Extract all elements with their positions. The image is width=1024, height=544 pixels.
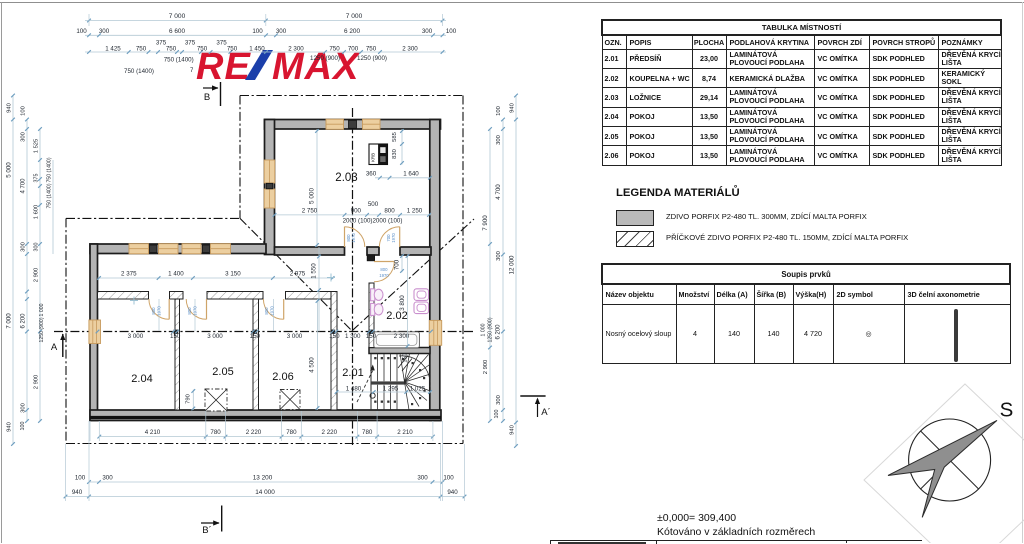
svg-text:940: 940 [7,422,13,432]
svg-text:2000 (100)2000 (100): 2000 (100)2000 (100) [343,218,403,225]
svg-text:1970: 1970 [351,233,356,243]
svg-text:1 525: 1 525 [34,139,40,154]
svg-text:940: 940 [72,489,83,496]
svg-text:940: 940 [510,425,516,435]
svg-text:1 400: 1 400 [168,271,184,278]
svg-text:750: 750 [197,46,208,53]
svg-text:800: 800 [380,267,388,272]
svg-text:150: 150 [403,353,409,362]
svg-text:1 000: 1 000 [39,303,45,316]
svg-text:7 000: 7 000 [169,13,186,20]
svg-text:2 300: 2 300 [288,46,304,53]
svg-text:KRB: KRB [371,153,376,162]
svg-text:3 150: 3 150 [225,271,241,278]
svg-text:5 000: 5 000 [6,162,13,178]
svg-text:100: 100 [75,475,86,482]
svg-text:300: 300 [102,475,113,482]
svg-text:150: 150 [366,333,377,340]
svg-text:7 000: 7 000 [346,13,363,20]
svg-text:2.04: 2.04 [131,373,152,385]
svg-text:100: 100 [446,28,457,35]
svg-text:A: A [51,342,58,353]
svg-text:300: 300 [422,28,433,35]
svg-text:100: 100 [494,410,500,419]
svg-text:1 000: 1 000 [481,323,487,336]
svg-text:830: 830 [392,149,398,159]
svg-text:750 (1400): 750 (1400) [47,157,53,182]
svg-text:2 900: 2 900 [34,268,40,283]
svg-text:780: 780 [362,429,373,436]
svg-text:100: 100 [76,28,87,35]
svg-text:300: 300 [21,132,27,142]
svg-text:13 200: 13 200 [253,475,273,482]
svg-text:2 900: 2 900 [483,360,489,375]
svg-text:1250 (900): 1250 (900) [357,55,387,62]
svg-text:300: 300 [496,251,502,261]
svg-text:6 200: 6 200 [344,28,360,35]
svg-text:1 425: 1 425 [105,46,121,53]
svg-text:4 210: 4 210 [145,429,161,436]
svg-text:940: 940 [447,489,458,496]
svg-text:2 975: 2 975 [290,271,306,278]
svg-text:3 000: 3 000 [207,333,223,340]
svg-text:5 000: 5 000 [309,188,316,204]
svg-text:14 000: 14 000 [255,489,275,496]
svg-text:150: 150 [250,333,261,340]
svg-text:1250 (900): 1250 (900) [39,317,45,342]
svg-text:B: B [204,92,210,103]
svg-text:300: 300 [99,28,110,35]
svg-text:780: 780 [286,429,297,436]
svg-text:700: 700 [394,259,401,270]
svg-text:375: 375 [34,174,40,183]
svg-text:1 550: 1 550 [311,263,318,279]
svg-text:750 (1400): 750 (1400) [164,57,194,64]
svg-text:750: 750 [329,46,340,53]
svg-text:7 900: 7 900 [482,215,489,231]
svg-text:750 (1400): 750 (1400) [47,183,53,208]
svg-text:6 200: 6 200 [21,313,27,329]
svg-text:12 000: 12 000 [509,255,516,274]
svg-text:1970: 1970 [379,273,389,278]
svg-text:2.01: 2.01 [342,367,363,379]
svg-text:300: 300 [21,242,27,252]
svg-text:500: 500 [368,201,379,208]
svg-text:A´: A´ [541,407,551,418]
svg-text:6 600: 6 600 [169,28,185,35]
svg-text:100: 100 [20,422,26,431]
svg-text:2 210: 2 210 [397,429,413,436]
svg-text:4 700: 4 700 [495,184,502,200]
svg-text:780: 780 [210,429,221,436]
svg-text:300: 300 [496,395,502,405]
svg-text:150: 150 [170,333,181,340]
svg-text:300: 300 [417,475,428,482]
svg-text:100: 100 [252,28,263,35]
svg-text:150: 150 [329,333,340,340]
svg-text:300: 300 [276,28,287,35]
svg-text:6 200: 6 200 [496,324,502,340]
svg-text:1 640: 1 640 [403,171,419,178]
svg-text:300: 300 [21,403,27,413]
svg-text:100: 100 [443,475,454,482]
svg-text:1970: 1970 [391,233,396,243]
svg-text:S: S [1000,399,1014,422]
svg-text:1 250: 1 250 [407,208,423,215]
svg-text:2 300: 2 300 [402,46,418,53]
svg-text:2.06: 2.06 [272,371,293,383]
svg-text:7 000: 7 000 [6,313,13,329]
svg-text:3 800: 3 800 [399,295,406,311]
svg-text:800: 800 [151,307,156,315]
svg-text:1 295: 1 295 [383,386,399,393]
svg-text:1 300: 1 300 [345,333,361,340]
svg-text:1250 (900): 1250 (900) [488,317,494,342]
svg-text:585: 585 [392,132,398,142]
svg-text:800: 800 [384,208,395,215]
svg-text:360: 360 [366,171,377,178]
svg-text:2 750: 2 750 [302,208,318,215]
svg-text:1970: 1970 [270,306,275,316]
svg-text:750: 750 [227,46,238,53]
svg-text:900: 900 [351,208,362,215]
svg-text:375: 375 [216,40,227,47]
svg-text:2.05: 2.05 [212,366,233,378]
svg-text:1970: 1970 [193,306,198,316]
svg-text:1970: 1970 [157,306,162,316]
svg-text:3 000: 3 000 [287,333,303,340]
svg-text:4 700: 4 700 [21,178,27,194]
svg-text:750 (1400): 750 (1400) [124,68,154,75]
svg-text:1 480: 1 480 [346,386,362,393]
svg-text:940: 940 [510,103,516,113]
svg-text:1 600: 1 600 [34,205,40,220]
svg-text:750: 750 [136,46,147,53]
svg-text:750: 750 [366,46,377,53]
svg-text:790: 790 [186,394,192,404]
svg-text:2.02: 2.02 [386,310,407,322]
svg-text:2 900: 2 900 [34,375,40,390]
svg-text:300: 300 [34,243,40,252]
svg-text:940: 940 [7,103,13,113]
svg-text:300: 300 [496,135,502,145]
svg-text:700: 700 [348,46,359,53]
svg-text:B´: B´ [202,525,212,536]
svg-text:100: 100 [496,106,502,116]
svg-text:100: 100 [21,106,27,116]
svg-text:4 500: 4 500 [309,357,316,373]
svg-text:2 220: 2 220 [322,429,338,436]
svg-text:2 375: 2 375 [121,271,137,278]
svg-text:750: 750 [166,46,177,53]
svg-text:2 220: 2 220 [246,429,262,436]
svg-text:1250 (900): 1250 (900) [310,55,340,62]
svg-text:3 000: 3 000 [128,333,144,340]
svg-text:1 025: 1 025 [410,386,426,393]
svg-text:2.03: 2.03 [335,172,357,184]
svg-text:800: 800 [187,307,192,315]
svg-text:375: 375 [185,40,196,47]
svg-text:800: 800 [264,307,269,315]
svg-text:1 450: 1 450 [249,46,265,53]
